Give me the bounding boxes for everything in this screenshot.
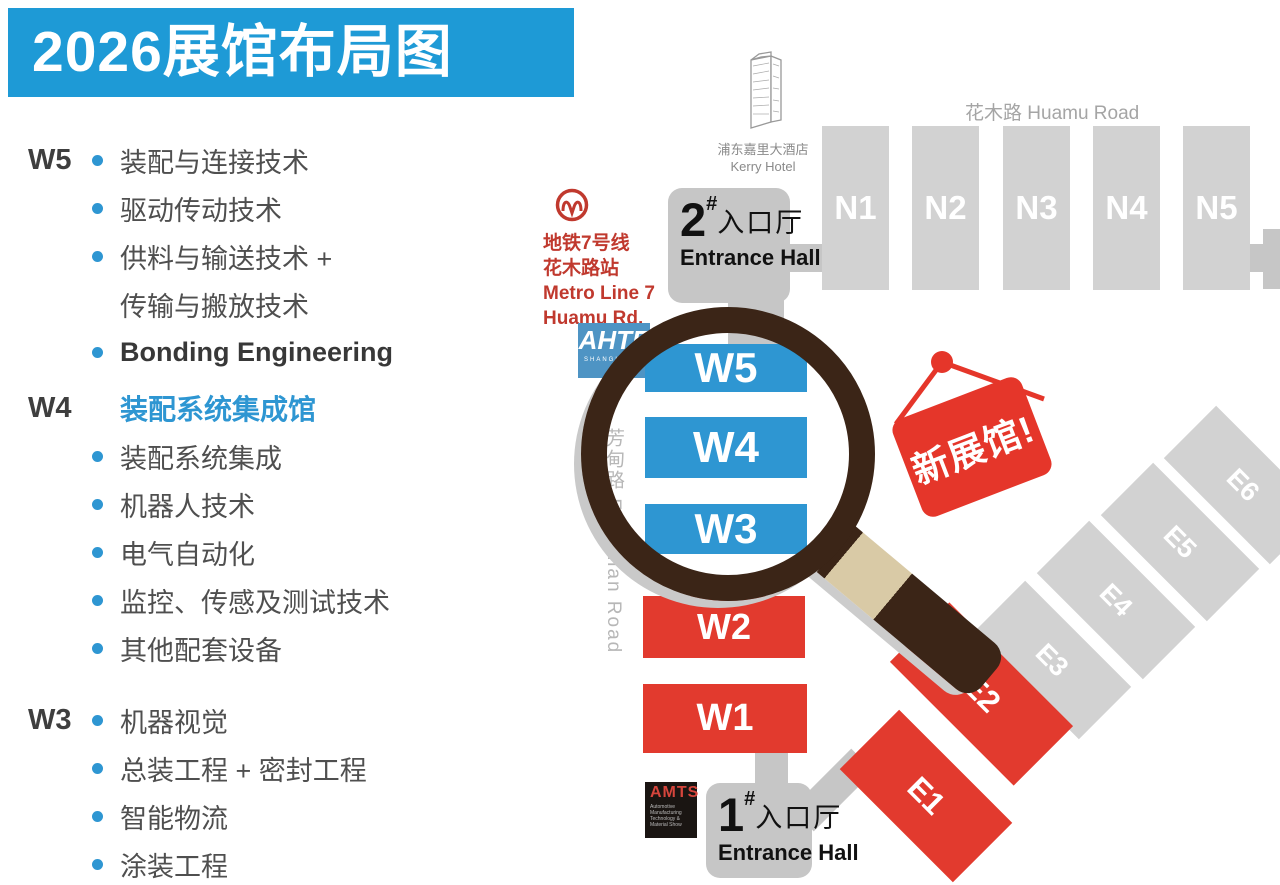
entrance-label-cn: 入口厅 [717,210,804,237]
hotel-building-icon [737,50,789,132]
entrance1-stem [755,751,788,785]
hall-group-label: W5 [28,144,92,177]
legend-row: W5 装配与连接技术 [28,136,588,184]
hall-label: E3 [1029,637,1074,682]
hall-n2: N2 [912,126,979,290]
legend-row: 监控、传感及测试技术 [28,576,588,624]
bullet-icon [92,203,120,214]
entrance-number: 2 [680,196,706,243]
hall-label: N1 [834,189,876,227]
legend-item: 其他配套设备 [120,629,282,668]
hall-group-label: W4 [28,392,92,425]
hall-label: N5 [1195,189,1237,227]
amts-logo-text: AMTS [650,785,697,801]
bullet-icon [92,811,120,822]
legend-row: 涂装工程 [28,840,588,885]
legend-row: 智能物流 [28,792,588,840]
legend-row: 传输与搬放技术 [28,280,588,328]
legend-item: 装配与连接技术 [120,141,309,180]
legend-row: 总装工程 + 密封工程 [28,744,588,792]
legend-item: 机器视觉 [120,701,228,740]
bullet-icon [92,451,120,462]
metro-info: 地铁7号线 花木路站 Metro Line 7 Huamu Rd. [543,188,655,331]
legend-row: 驱动传动技术 [28,184,588,232]
legend-row: W3 机器视觉 [28,696,588,744]
hall-n3: N3 [1003,126,1070,290]
entrance-hash: # [706,194,717,214]
hall-label: N2 [924,189,966,227]
entrance-number: 1 [718,791,744,838]
entrance-hall-2: 2#入口厅 Entrance Hall [668,188,790,303]
bullet-icon [92,251,120,262]
exhibition-layout-map: 2026展馆布局图 W5 装配与连接技术 驱动传动技术 供料与输送技术 + 传输… [0,0,1280,885]
bullet-icon [92,763,120,774]
entrance-label-en: Entrance Hall [718,840,812,866]
legend-item: 总装工程 + 密封工程 [120,749,367,788]
legend-item: 涂装工程 [120,845,228,884]
legend-row: 装配系统集成 [28,432,588,480]
hall-label: W2 [697,606,751,648]
legend-item: Bonding Engineering [120,337,393,368]
edge-hall-piece [1263,229,1280,289]
metro-station-cn: 花木路站 [543,256,655,281]
legend-item: 装配系统集成 [120,437,282,476]
bullet-icon [92,715,120,726]
legend-item: 供料与输送技术 + [120,237,332,276]
legend-item: 传输与搬放技术 [120,285,309,324]
amts-logo-sub: Automotive Manufacturing Technology & Ma… [650,804,697,828]
entrance-label-cn: 入口厅 [755,805,842,832]
legend-row: Bonding Engineering [28,328,588,376]
new-hall-badge-text: 新展馆! [903,399,1041,495]
hall-label: E4 [1093,577,1138,622]
amts-logo: AMTS Automotive Manufacturing Technology… [645,782,697,838]
hall-n5: N5 [1183,126,1250,290]
hall-group-label: W3 [28,704,92,737]
bullet-icon [92,859,120,870]
title-banner: 2026展馆布局图 [8,8,574,97]
new-hall-badge: 新展馆! [889,374,1055,521]
metro-line-cn: 地铁7号线 [543,231,655,256]
hotel-name-en: Kerry Hotel [700,158,826,175]
bullet-icon [92,347,120,358]
legend-item: 驱动传动技术 [120,189,282,228]
legend-row: 电气自动化 [28,528,588,576]
legend-item: 监控、传感及测试技术 [120,581,390,620]
legend-section-w3: W3 机器视觉 总装工程 + 密封工程 智能物流 涂装工程 [28,696,588,885]
hall-w2: W2 [643,596,805,658]
bullet-icon [92,643,120,654]
huamu-road-label: 花木路 Huamu Road [965,98,1139,125]
kerry-hotel: 浦东嘉里大酒店 Kerry Hotel [700,50,826,175]
legend-row: W4 装配系统集成馆 [28,384,588,432]
hall-w1: W1 [643,684,807,753]
hall-label: E1 [900,770,952,822]
hall-label: N3 [1015,189,1057,227]
legend-item: 机器人技术 [120,485,255,524]
legend-section-w4: W4 装配系统集成馆 装配系统集成 机器人技术 电气自动化 监控、传感及测试技术 [28,384,588,672]
entrance-hall-1: 1#入口厅 Entrance Hall [706,783,812,878]
bullet-icon [92,595,120,606]
page-title: 2026展馆布局图 [8,8,574,97]
hall-label: E5 [1157,519,1202,564]
legend-item: 智能物流 [120,797,228,836]
legend-item: 电气自动化 [120,533,255,572]
magnifier-ring [581,307,875,601]
legend-section-header: 装配系统集成馆 [120,388,316,428]
metro-logo-icon [555,188,589,222]
legend-section-w5: W5 装配与连接技术 驱动传动技术 供料与输送技术 + 传输与搬放技术 Bond… [28,136,588,376]
hall-label: N4 [1105,189,1147,227]
entrance-label-en: Entrance Hall [680,245,790,271]
legend-row: 机器人技术 [28,480,588,528]
hall-n4: N4 [1093,126,1160,290]
hall-n1: N1 [822,126,889,290]
legend-row: 其他配套设备 [28,624,588,672]
legend-row: 供料与输送技术 + [28,232,588,280]
bullet-icon [92,547,120,558]
bullet-icon [92,155,120,166]
entrance-hash: # [744,789,755,809]
hotel-name-cn: 浦东嘉里大酒店 [700,141,826,158]
bullet-icon [92,499,120,510]
hall-label: E6 [1220,462,1265,507]
metro-line-en: Metro Line 7 [543,281,655,306]
hall-label: W1 [697,697,754,740]
